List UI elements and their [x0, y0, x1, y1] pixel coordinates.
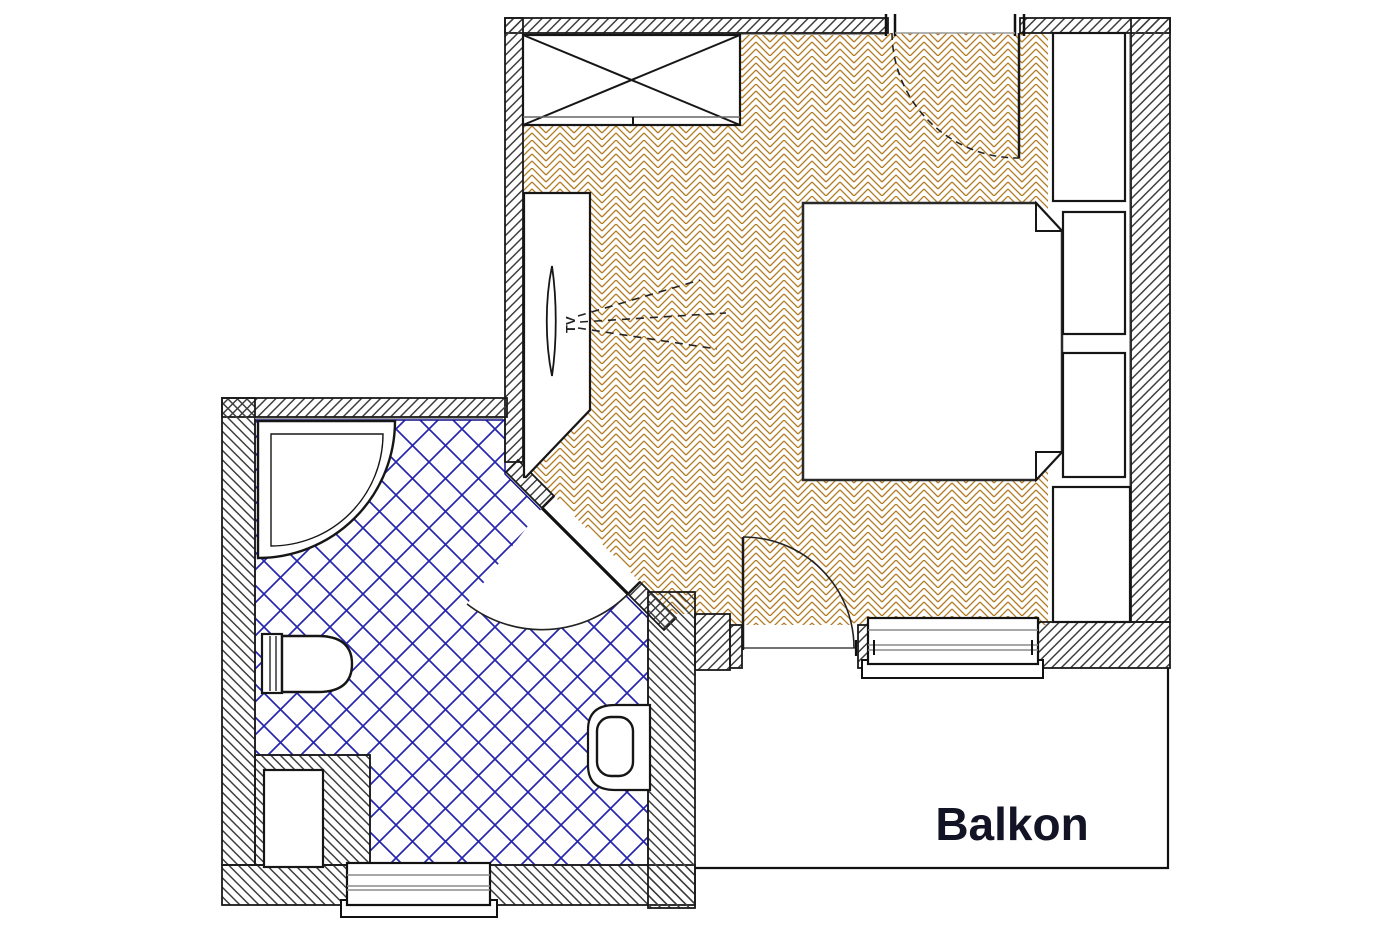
double-bed: [803, 203, 1062, 480]
closet-bottom: [1053, 487, 1130, 622]
wardrobe: [523, 35, 740, 125]
balcony-outline: [695, 668, 1168, 868]
tv-label: TV: [563, 316, 578, 333]
wall-bottom-left-piece: [730, 625, 742, 668]
closet-top: [1053, 33, 1125, 201]
balcony: Balkon: [695, 668, 1168, 868]
toilet: [262, 634, 352, 693]
wall-niche: [264, 770, 323, 867]
balcony-label: Balkon: [935, 798, 1088, 850]
wall-bottom-right-piece: [1038, 622, 1170, 668]
sink-basin: [597, 717, 633, 776]
toilet-bowl: [282, 636, 352, 692]
wall-bedroom-left: [505, 18, 523, 462]
nightstand-upper: [1063, 212, 1125, 334]
sink-vanity: [588, 705, 650, 790]
wall-bathroom-right-balcony: [648, 592, 695, 908]
floor-plan: Balkon: [0, 0, 1400, 933]
bedroom-window: [862, 618, 1043, 678]
wall-top-left-piece: [505, 18, 888, 33]
nightstand-lower: [1063, 353, 1125, 477]
pillow-fold-bottom: [1036, 452, 1062, 480]
bathroom-window: [341, 863, 497, 917]
wall-bathroom-top: [222, 398, 507, 417]
wall-bathroom-bottom-left: [222, 865, 350, 905]
floor-plan-canvas: Balkon: [0, 0, 1400, 933]
pillow-fold-top: [1036, 203, 1062, 231]
wall-right: [1131, 18, 1170, 622]
wall-corner-chunk: [695, 614, 730, 670]
wall-bathroom-left: [222, 398, 255, 865]
